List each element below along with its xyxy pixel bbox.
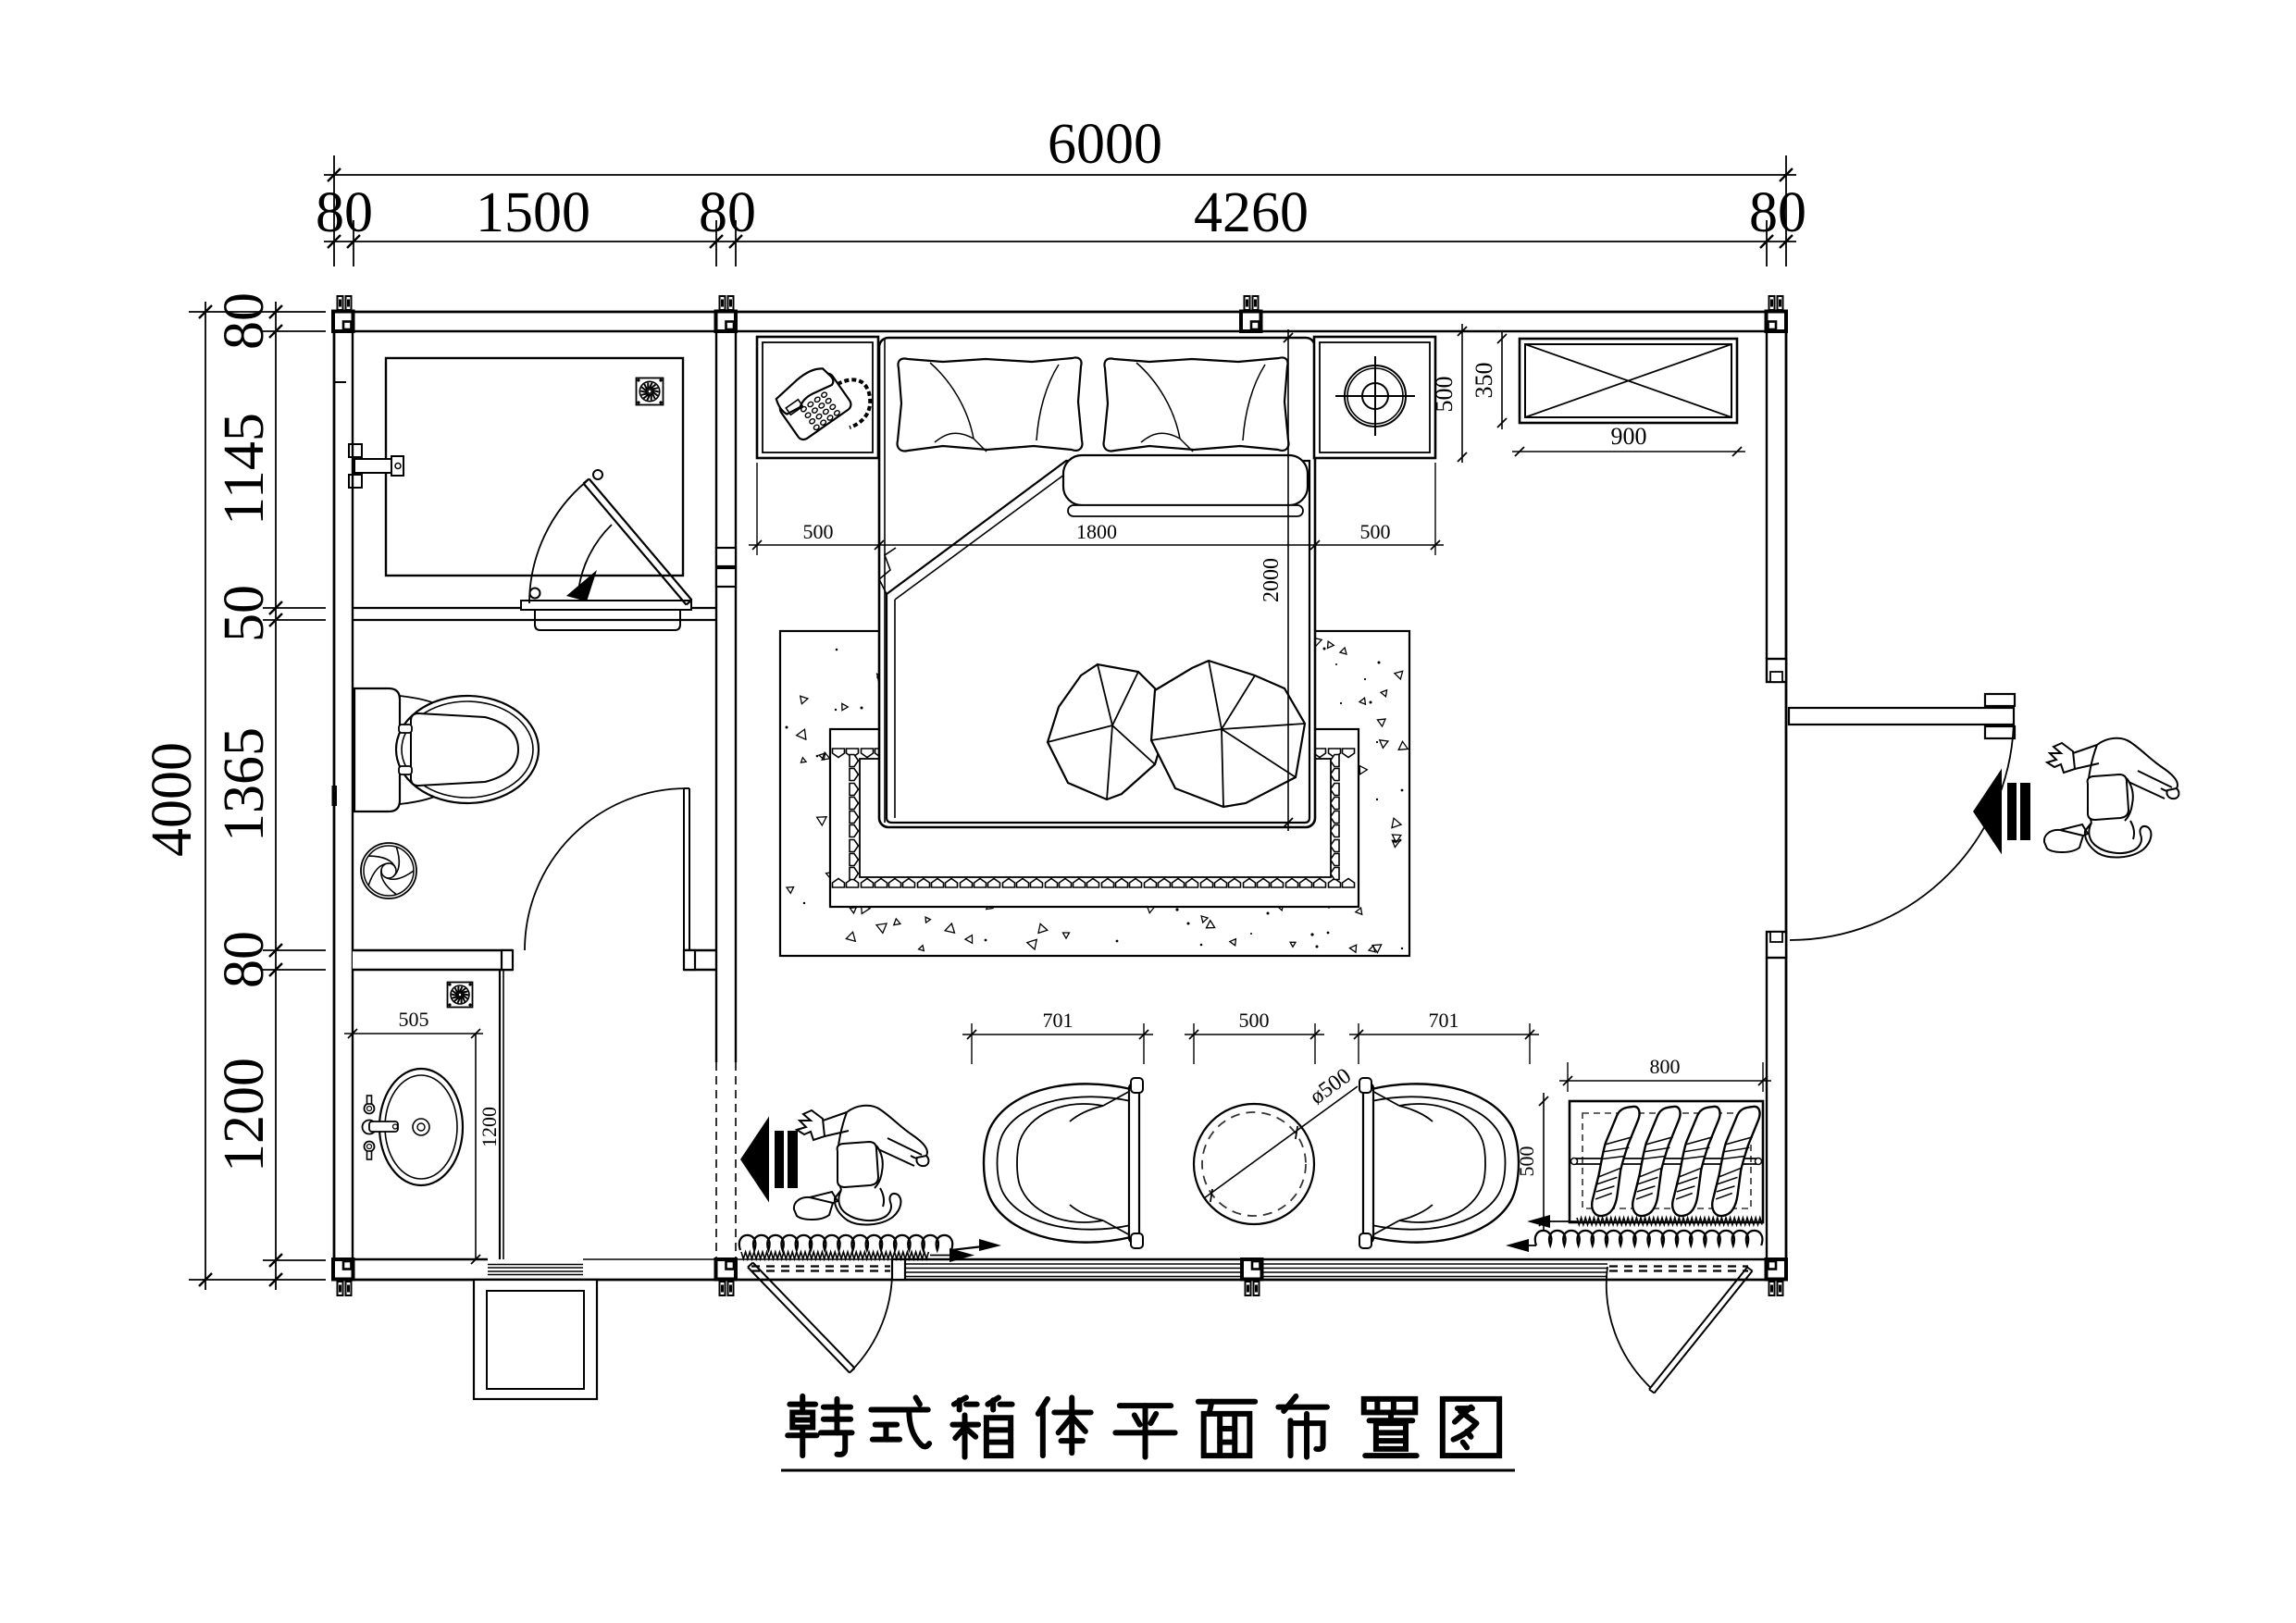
svg-text:500: 500 [803, 520, 834, 543]
svg-text:900: 900 [1611, 423, 1647, 450]
svg-text:500: 500 [1239, 1009, 1270, 1032]
svg-text:701: 701 [1043, 1009, 1074, 1032]
svg-text:1200: 1200 [478, 1107, 501, 1147]
svg-text:80: 80 [316, 181, 373, 244]
svg-text:500: 500 [1360, 520, 1391, 543]
svg-text:1500: 1500 [476, 181, 590, 244]
svg-text:80: 80 [213, 292, 276, 350]
svg-text:2000: 2000 [1260, 558, 1284, 602]
svg-text:1800: 1800 [1076, 520, 1117, 543]
svg-text:505: 505 [399, 1008, 429, 1031]
svg-text:500: 500 [1431, 377, 1458, 413]
svg-text:80: 80 [213, 931, 276, 988]
svg-text:701: 701 [1429, 1009, 1459, 1032]
svg-text:4000: 4000 [141, 742, 204, 857]
svg-text:1365: 1365 [213, 727, 276, 842]
svg-text:1200: 1200 [213, 1058, 276, 1172]
svg-text:80: 80 [1749, 181, 1806, 244]
svg-text:80: 80 [699, 181, 756, 244]
svg-text:350: 350 [1471, 363, 1497, 399]
svg-text:500: 500 [1515, 1146, 1538, 1177]
svg-text:50: 50 [213, 585, 276, 642]
svg-text:6000: 6000 [1048, 113, 1162, 176]
svg-text:1145: 1145 [213, 413, 276, 526]
svg-text:800: 800 [1650, 1055, 1681, 1078]
svg-text:4260: 4260 [1194, 181, 1309, 244]
